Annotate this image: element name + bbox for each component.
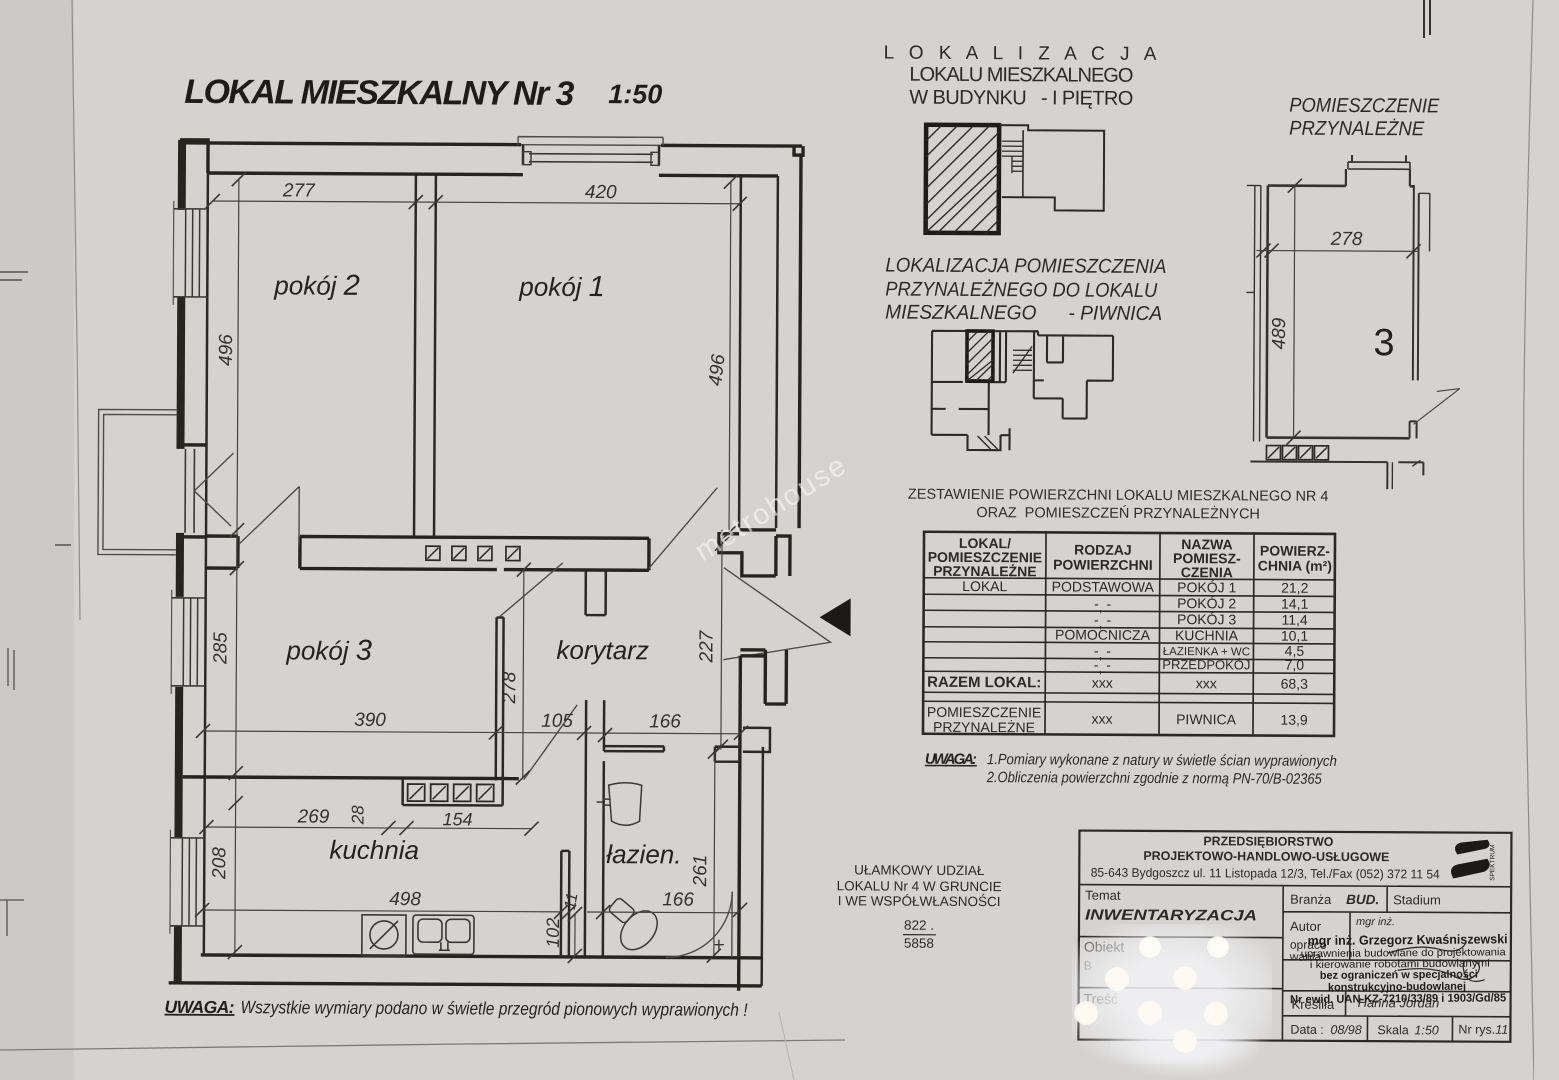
svg-text:mgr inż. Grzegorz Kwaśniszewsk: mgr inż. Grzegorz Kwaśniszewski	[1308, 931, 1508, 948]
svg-text:POKÓJ 1: POKÓJ 1	[1177, 579, 1236, 595]
svg-text:496: 496	[216, 334, 237, 366]
svg-text:BUD.: BUD.	[1346, 892, 1379, 907]
svg-text:pokój 3: pokój 3	[285, 634, 372, 666]
svg-text:PRZEDPOKÓJ: PRZEDPOKÓJ	[1162, 657, 1250, 672]
svg-text:W BUDYNKU - I PIĘTRO: W BUDYNKU - I PIĘTRO	[909, 87, 1133, 110]
svg-text:POWIERZ-: POWIERZ-	[1260, 543, 1330, 559]
svg-text:LOKAL MIESZKALNY Nr 3: LOKAL MIESZKALNY Nr 3	[184, 73, 574, 113]
svg-text:PODSTAWOWA: PODSTAWOWA	[1052, 578, 1155, 595]
svg-text:3: 3	[1373, 322, 1394, 364]
svg-text:Stadium: Stadium	[1393, 892, 1441, 907]
svg-text:mgr inż.: mgr inż.	[1356, 916, 1395, 928]
svg-text:Autor: Autor	[1290, 919, 1322, 934]
svg-text:496: 496	[705, 353, 729, 387]
svg-text:INWENTARYZACJA: INWENTARYZACJA	[1085, 907, 1257, 925]
svg-text:L O K A L I Z A C J A: L O K A L I Z A C J A	[884, 43, 1162, 65]
svg-text:UWAGA:: UWAGA:	[925, 751, 977, 768]
svg-text:166: 166	[649, 711, 681, 732]
svg-text:xxx: xxx	[1092, 675, 1113, 691]
svg-text:102: 102	[543, 918, 563, 948]
svg-text:227: 227	[696, 629, 717, 663]
svg-text:285: 285	[210, 632, 231, 665]
svg-text:1:50: 1:50	[1414, 1023, 1438, 1037]
svg-text:pokój 1: pokój 1	[518, 271, 605, 303]
svg-text:xxx: xxx	[1196, 675, 1217, 691]
svg-text:Temat: Temat	[1085, 888, 1121, 903]
svg-text:LOKALU Nr 4 W GRUNCIE: LOKALU Nr 4 W GRUNCIE	[837, 878, 1002, 894]
svg-text:489: 489	[1269, 317, 1290, 349]
svg-text:822 .: 822 .	[904, 918, 934, 933]
svg-text:SPEKTRUM: SPEKTRUM	[1489, 845, 1496, 881]
svg-text:498: 498	[389, 889, 421, 910]
svg-text:korytarz: korytarz	[556, 635, 649, 665]
svg-text:LOKALU MIESZKALNEGO: LOKALU MIESZKALNEGO	[909, 64, 1133, 87]
svg-text:ORAZ POMIESZCZEŃ PRZYNALEŻNYC: ORAZ POMIESZCZEŃ PRZYNALEŻNYCH	[976, 503, 1260, 522]
svg-text:ZESTAWIENIE POWIERZCHNI LOKALU: ZESTAWIENIE POWIERZCHNI LOKALU MIESZKALN…	[908, 487, 1329, 505]
svg-text:Hanna Jordan: Hanna Jordan	[1358, 995, 1440, 1010]
svg-text:154: 154	[442, 809, 472, 829]
svg-text:2.Obliczenia powierzchni zgodn: 2.Obliczenia powierzchni zgodnie z normą…	[986, 769, 1323, 788]
svg-text:LOKAL: LOKAL	[962, 578, 1007, 594]
svg-text:PRZYNALEŻNE: PRZYNALEŻNE	[1289, 118, 1425, 141]
svg-text:21,2: 21,2	[1281, 580, 1309, 596]
svg-text:1.Pomiary wykonane z natury w: 1.Pomiary wykonane z natury w świetle śc…	[987, 751, 1337, 770]
svg-text:1:50: 1:50	[608, 79, 662, 109]
svg-text:Kreśliła: Kreśliła	[1292, 997, 1335, 1012]
svg-text:08/98: 08/98	[1330, 1023, 1361, 1037]
svg-text:KUCHNIA: KUCHNIA	[1175, 627, 1239, 643]
svg-text:POMIESZCZENIE: POMIESZCZENIE	[1289, 95, 1440, 118]
svg-text:11,4: 11,4	[1281, 612, 1308, 628]
svg-text:PIWNICA: PIWNICA	[1176, 711, 1237, 727]
svg-text:68,3: 68,3	[1281, 676, 1309, 692]
svg-text:POMOCNICZA: POMOCNICZA	[1055, 626, 1151, 643]
svg-text:RODZAJ: RODZAJ	[1074, 542, 1132, 558]
svg-text:POKÓJ 3: POKÓJ 3	[1177, 611, 1236, 627]
svg-text:PRZYNALEŻNE: PRZYNALEŻNE	[933, 718, 1035, 736]
svg-text:10,1: 10,1	[1281, 628, 1309, 644]
svg-text:7,0: 7,0	[1285, 657, 1305, 673]
svg-text:CZENIA: CZENIA	[1181, 564, 1233, 580]
svg-text:PRZYNALEŻNE: PRZYNALEŻNE	[933, 563, 1037, 580]
svg-text:łazien.: łazien.	[606, 839, 681, 869]
svg-text:UŁAMKOWY UDZIAŁ: UŁAMKOWY UDZIAŁ	[854, 862, 985, 878]
svg-text:166: 166	[662, 889, 694, 910]
svg-text:pokój 2: pokój 2	[273, 269, 360, 301]
svg-text:POWIERZCHNI: POWIERZCHNI	[1053, 556, 1153, 573]
svg-text:11: 11	[562, 891, 582, 910]
svg-text:105: 105	[541, 711, 573, 732]
svg-text:14,1: 14,1	[1281, 596, 1309, 612]
svg-text:PROJEKTOWO-HANDLOWO-USŁUGOWE: PROJEKTOWO-HANDLOWO-USŁUGOWE	[1143, 849, 1389, 864]
svg-text:xxx: xxx	[1092, 711, 1113, 727]
svg-text:Wszystkie wymiary podano w świ: Wszystkie wymiary podano w świetle przeg…	[240, 997, 747, 1020]
svg-text:278: 278	[1330, 229, 1363, 250]
svg-text:13,9: 13,9	[1280, 712, 1308, 728]
svg-text:208: 208	[209, 847, 230, 880]
svg-text:278: 278	[499, 671, 520, 704]
svg-text:RAZEM LOKAL:: RAZEM LOKAL:	[927, 674, 1041, 692]
svg-text:PRZEDSIĘBIORSTWO: PRZEDSIĘBIORSTWO	[1203, 834, 1333, 849]
svg-text:261: 261	[690, 855, 711, 888]
svg-text:kuchnia: kuchnia	[329, 835, 419, 865]
svg-text:Nr rys.11: Nr rys.11	[1458, 1023, 1508, 1037]
svg-text:MIESZKALNEGO - PIWNICA: MIESZKALNEGO - PIWNICA	[885, 302, 1162, 325]
svg-text:Data :: Data :	[1290, 1023, 1323, 1037]
svg-text:28: 28	[349, 805, 368, 826]
svg-text:LOKALIZACJA POMIESZCZENIA: LOKALIZACJA POMIESZCZENIA	[885, 255, 1166, 278]
svg-text:Skala: Skala	[1377, 1023, 1408, 1037]
svg-text:277: 277	[282, 180, 316, 201]
svg-text:PRZYNALEŻNEGO DO LOKALU: PRZYNALEŻNEGO DO LOKALU	[885, 279, 1158, 302]
svg-text:I WE WSPÓŁWŁASNOŚCI: I WE WSPÓŁWŁASNOŚCI	[838, 893, 1001, 909]
svg-text:POKÓJ 2: POKÓJ 2	[1177, 595, 1236, 611]
svg-text:85-643 Bydgoszcz ul. 11 Listop: 85-643 Bydgoszcz ul. 11 Listopada 12/3, …	[1091, 866, 1440, 882]
svg-text:CHNIA (m²): CHNIA (m²)	[1258, 558, 1332, 574]
svg-text:5858: 5858	[904, 936, 934, 951]
svg-text:420: 420	[585, 182, 617, 203]
svg-text:Branża: Branża	[1290, 892, 1332, 907]
svg-text:UWAGA:: UWAGA:	[164, 997, 234, 1017]
svg-text:269: 269	[297, 806, 330, 827]
svg-text:390: 390	[354, 710, 386, 731]
